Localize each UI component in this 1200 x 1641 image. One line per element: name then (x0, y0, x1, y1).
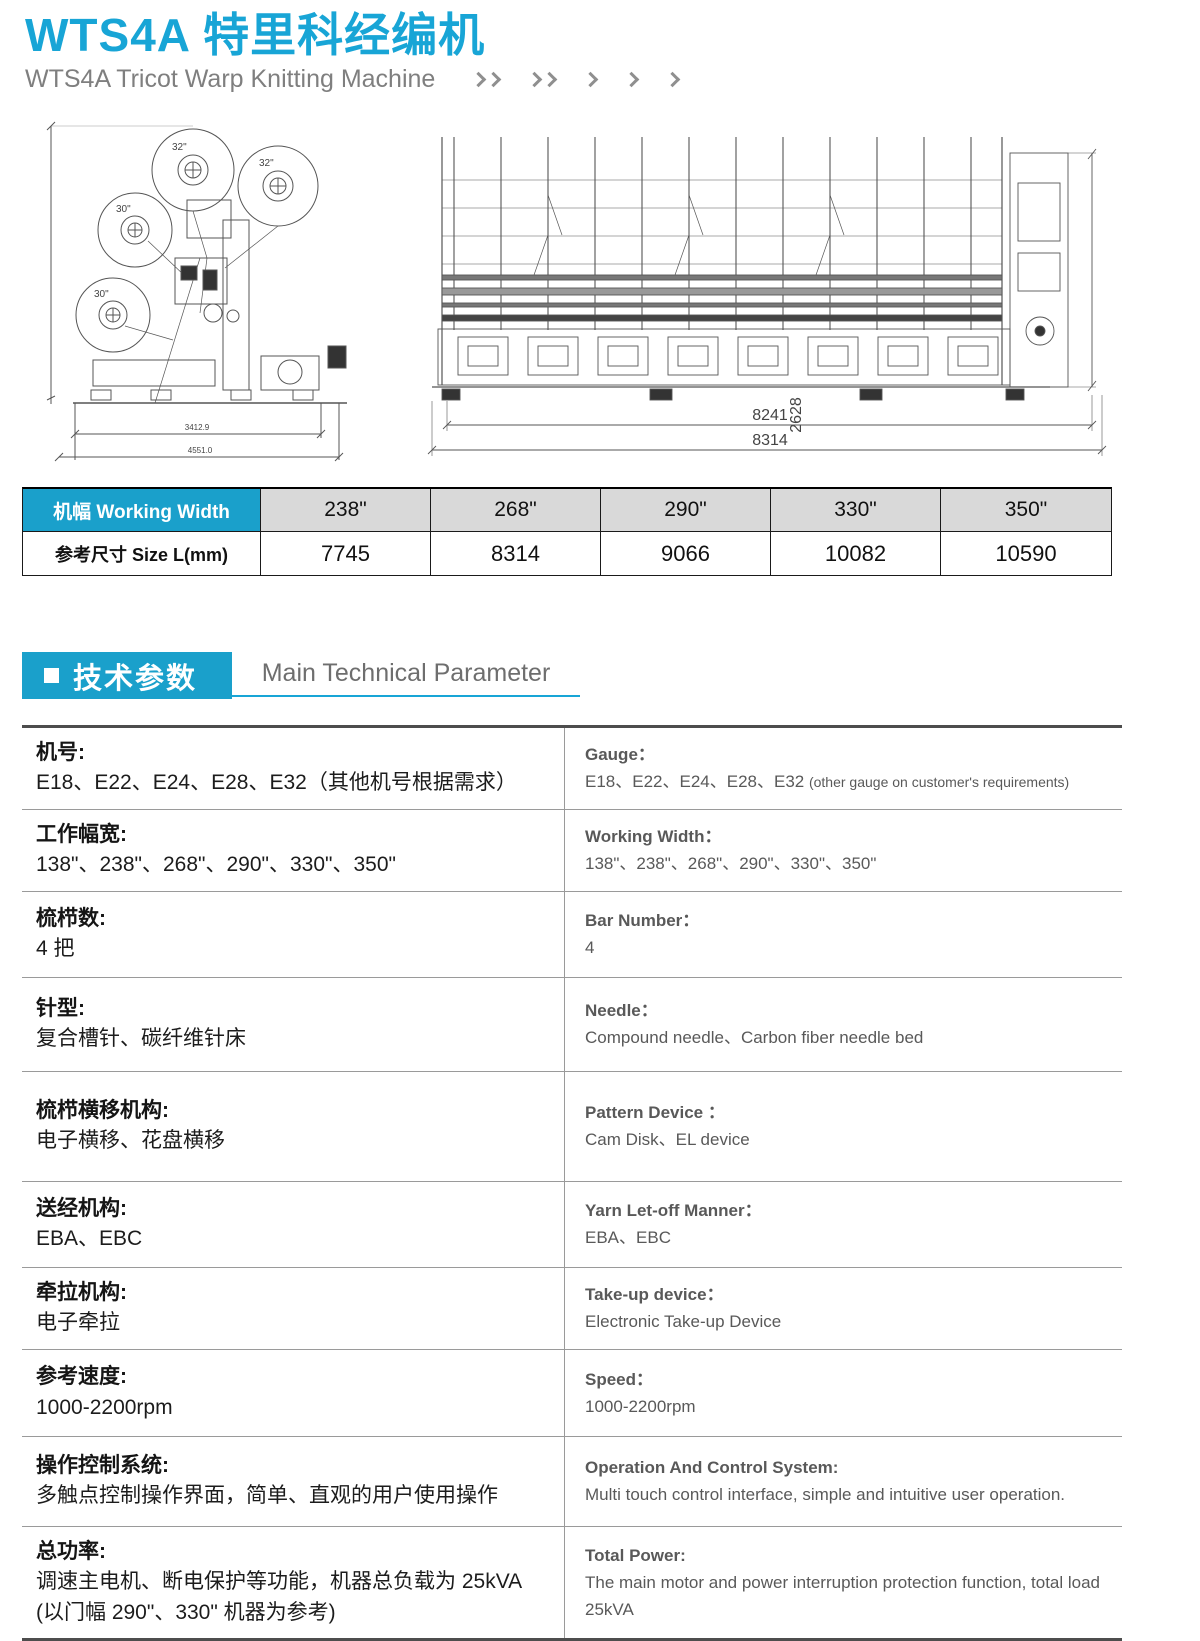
chevron-right-icon (624, 72, 640, 88)
machine-side-view-drawing: 2568.8 32" 32" 30" 30" (35, 108, 360, 468)
spec-en-value: Compound needle、Carbon fiber needle bed (585, 1024, 1108, 1051)
side-width-dim-inner: 3412.9 (185, 423, 210, 432)
spec-en-label: Total Power: (585, 1542, 1108, 1569)
spec-cn-value: EBA、EBC (36, 1224, 550, 1254)
spec-cn-value: 1000-2200rpm (36, 1393, 550, 1423)
spec-cn-label: 参考速度: (36, 1362, 550, 1392)
spec-row-take-up: 牵拉机构: 电子牵拉 Take-up device： Electronic Ta… (22, 1268, 1122, 1350)
width-column-header: 290" (601, 489, 771, 532)
spec-en-value: 4 (585, 934, 1108, 961)
section-title-box: 技术参数 (22, 652, 232, 699)
spec-cn-value: 调速主电机、断电保护等功能，机器总负载为 25kVA (36, 1567, 550, 1597)
beam-size-label: 30" (116, 204, 131, 215)
chevron-right-icon (665, 72, 681, 88)
spec-en-label: Working Width： (585, 823, 1108, 850)
size-value: 10082 (771, 532, 941, 575)
beam-size-label: 32" (172, 142, 187, 153)
spec-en-label: Gauge： (585, 741, 1108, 768)
spec-row-bar-number: 梳栉数: 4 把 Bar Number： 4 (22, 892, 1122, 978)
spec-cn-label: 操作控制系统: (36, 1451, 550, 1481)
beam-size-label: 32" (259, 158, 274, 169)
spec-en-value: Cam Disk、EL device (585, 1126, 1108, 1153)
spec-en-value: Electronic Take-up Device (585, 1308, 1108, 1335)
section-title-cn: 技术参数 (73, 655, 197, 697)
spec-en-label: Needle： (585, 997, 1108, 1024)
size-value: 9066 (601, 532, 771, 575)
size-row-label: 参考尺寸 Size L(mm) (23, 532, 261, 575)
spec-cn-label: 送经机构: (36, 1194, 550, 1224)
spec-en-value: E18、E22、E24、E28、E32 (other gauge on cust… (585, 768, 1108, 795)
width-column-header: 268" (431, 489, 601, 532)
chevron-right-icon (542, 72, 558, 88)
spec-en-value: 138"、238"、268"、290"、330"、350" (585, 850, 1108, 877)
working-width-table: 机幅 Working Width 238" 268" 290" 330" 350… (22, 487, 1112, 576)
spec-cn-label: 牵拉机构: (36, 1278, 550, 1308)
square-bullet-icon (44, 668, 59, 683)
size-value: 8314 (431, 532, 601, 575)
beam-size-label: 30" (94, 289, 109, 300)
page-header: WTS4A 特里科经编机 WTS4A Tricot Warp Knitting … (25, 8, 1175, 94)
section-title-en: Main Technical Parameter (232, 652, 580, 697)
spec-cn-label: 工作幅宽: (36, 820, 550, 850)
chevron-right-icon (583, 72, 599, 88)
page-title: WTS4A 特里科经编机 (25, 8, 1175, 63)
spec-row-total-power: 总功率: 调速主电机、断电保护等功能，机器总负载为 25kVA (以门幅 290… (22, 1527, 1122, 1638)
spec-cn-label: 梳栉横移机构: (36, 1096, 550, 1126)
spec-row-speed: 参考速度: 1000-2200rpm Speed： 1000-2200rpm (22, 1350, 1122, 1437)
side-width-dim-outer: 4551.0 (188, 446, 213, 455)
spec-row-control-system: 操作控制系统: 多触点控制操作界面，简单、直观的用户使用操作 Operation… (22, 1437, 1122, 1527)
spec-cn-value: 多触点控制操作界面，简单、直观的用户使用操作 (36, 1481, 550, 1511)
spec-cn-label: 总功率: (36, 1537, 550, 1567)
page: WTS4A 特里科经编机 WTS4A Tricot Warp Knitting … (0, 0, 1200, 1639)
front-width-dim-outer: 8314 (752, 432, 788, 449)
chevron-right-icon (527, 72, 543, 88)
spec-en-value: EBA、EBC (585, 1224, 1108, 1251)
chevron-decoration-icons (473, 74, 682, 85)
spec-cn-value: 电子横移、花盘横移 (36, 1126, 550, 1156)
width-column-header: 238" (261, 489, 431, 532)
front-width-dim-inner: 8241 (752, 407, 788, 424)
spec-en-value: 1000-2200rpm (585, 1393, 1108, 1420)
spec-en-value: Multi touch control interface, simple an… (585, 1481, 1108, 1508)
spec-cn-value: 138"、238"、268"、290"、330"、350" (36, 850, 550, 880)
spec-cn-value: 复合槽针、碳纤维针床 (36, 1024, 550, 1054)
chevron-right-icon (486, 72, 502, 88)
spec-en-note: (other gauge on customer's requirements) (809, 774, 1069, 790)
spec-en-label: Bar Number： (585, 907, 1108, 934)
spec-cn-label: 针型: (36, 994, 550, 1024)
spec-cn-value: E18、E22、E24、E28、E32（其他机号根据需求） (36, 768, 550, 798)
machine-front-view-drawing: 2628 8241 8314 (402, 125, 1107, 465)
creel-posts (454, 137, 971, 330)
width-column-header: 350" (941, 489, 1111, 532)
page-subtitle: WTS4A Tricot Warp Knitting Machine (25, 65, 435, 94)
spec-cn-label: 梳栉数: (36, 904, 550, 934)
size-value: 10590 (941, 532, 1111, 575)
spec-cn-value-2: (以门幅 290"、330" 机器为参考) (36, 1598, 550, 1628)
spec-table: 机号: E18、E22、E24、E28、E32（其他机号根据需求） Gauge：… (22, 725, 1122, 1641)
chevron-right-icon (471, 72, 487, 88)
page-subtitle-row: WTS4A Tricot Warp Knitting Machine (25, 65, 1175, 94)
spec-en-label: Pattern Device ： (585, 1099, 1108, 1126)
size-table-corner-header: 机幅 Working Width (23, 489, 261, 532)
spec-row-working-width: 工作幅宽: 138"、238"、268"、290"、330"、350" Work… (22, 810, 1122, 892)
spec-cn-value: 4 把 (36, 934, 550, 964)
spec-en-label: Speed： (585, 1366, 1108, 1393)
spec-en-value: The main motor and power interruption pr… (585, 1569, 1108, 1623)
technical-drawings: 2568.8 32" 32" 30" 30" (0, 100, 1200, 475)
spec-en-label: Yarn Let-off Manner： (585, 1197, 1108, 1224)
spec-en-label: Take-up device： (585, 1281, 1108, 1308)
spec-row-pattern-device: 梳栉横移机构: 电子横移、花盘横移 Pattern Device ： Cam D… (22, 1072, 1122, 1182)
spec-row-needle: 针型: 复合槽针、碳纤维针床 Needle： Compound needle、C… (22, 978, 1122, 1072)
spec-cn-label: 机号: (36, 738, 550, 768)
spec-cn-value: 电子牵拉 (36, 1308, 550, 1338)
spec-row-gauge: 机号: E18、E22、E24、E28、E32（其他机号根据需求） Gauge：… (22, 728, 1122, 810)
section-header: 技术参数 Main Technical Parameter (22, 652, 1122, 699)
spec-en-label: Operation And Control System: (585, 1454, 1108, 1481)
bottom-panels (458, 337, 998, 375)
width-column-header: 330" (771, 489, 941, 532)
front-height-dim: 2628 (788, 397, 805, 433)
size-value: 7745 (261, 532, 431, 575)
spec-row-yarn-let-off: 送经机构: EBA、EBC Yarn Let-off Manner： EBA、E… (22, 1182, 1122, 1268)
